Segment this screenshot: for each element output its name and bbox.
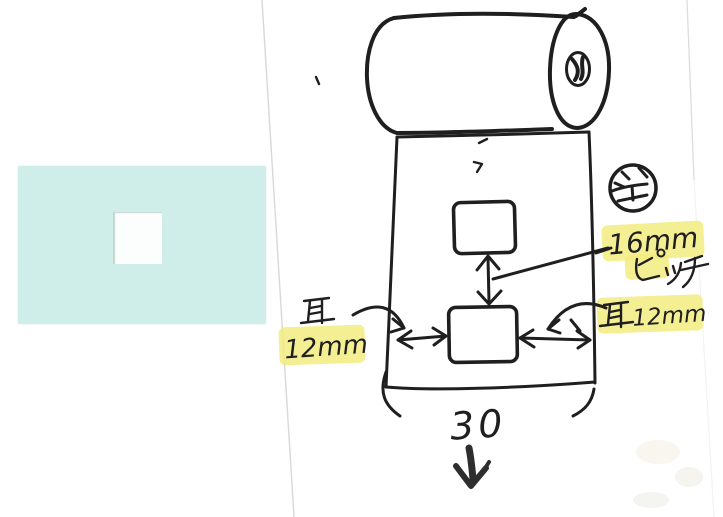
stamp-circle-icon (610, 165, 656, 211)
label-roll (367, 9, 609, 133)
web-cut-curl-right (573, 389, 594, 416)
label-pitch: 16mm (607, 221, 708, 287)
sketch-drawing: 16mm 12mm (0, 0, 723, 517)
die-cut-labels (449, 201, 518, 362)
pitch-dimension-arrow (477, 248, 611, 304)
scan-smudges (633, 440, 703, 508)
ear-left-value: 12mm (283, 330, 369, 366)
die-cut-label-bottom (449, 306, 518, 362)
ink-specks (316, 77, 487, 172)
web-cut-curl-left (383, 372, 400, 416)
roll-core-icon (567, 53, 590, 86)
scanned-sketch-page: 16mm 12mm (0, 0, 723, 517)
web-width-value: 30 (449, 401, 508, 449)
ear-left-dimension-arrow (398, 328, 446, 348)
ear-right-value: 12mm (632, 301, 708, 332)
feed-direction-arrow (456, 448, 489, 486)
die-cut-label-top (453, 201, 515, 254)
ear-left-kanji (301, 298, 334, 323)
